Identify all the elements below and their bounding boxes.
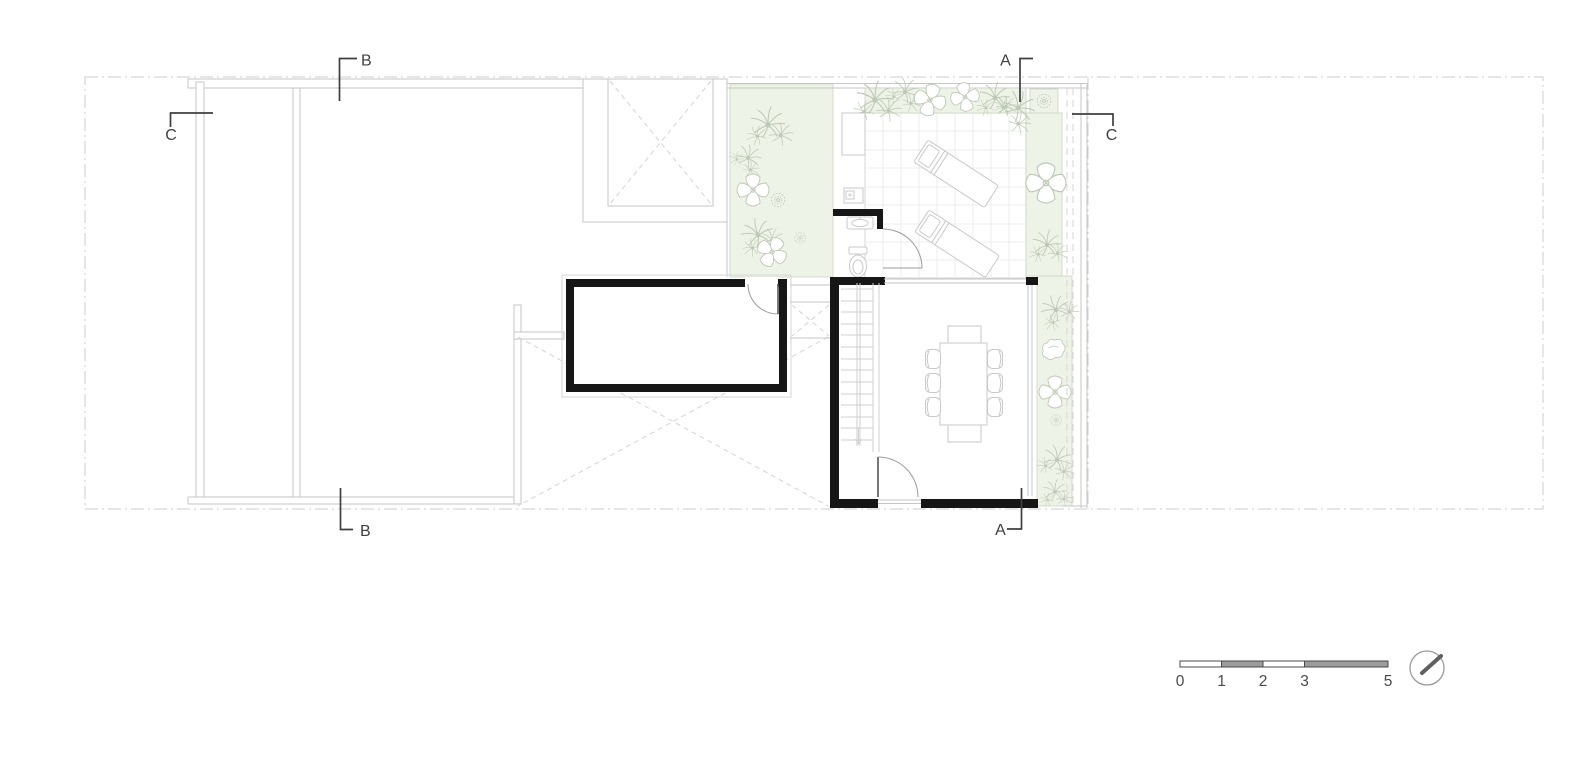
section-marker-c-right: C [1072, 114, 1118, 144]
stair-direction-arrow [855, 428, 862, 444]
dining-end-seat [948, 425, 981, 442]
section-marker-c-left: C [165, 113, 213, 144]
roof-plan-page: B C A C B A 0 1 2 3 5 [0, 0, 1582, 776]
equipment-unit [844, 188, 863, 203]
chair-icon [988, 350, 1003, 369]
section-label: B [360, 523, 372, 540]
dining-table [940, 343, 987, 425]
roof-room-walls [570, 283, 783, 388]
terrace-tiled-floor [865, 113, 1026, 278]
chair-icon [926, 350, 941, 369]
scale-tick-label: 0 [1176, 673, 1185, 690]
section-label: C [165, 127, 178, 144]
chair-icon [926, 398, 941, 417]
bottom-parapet-wall [188, 497, 518, 504]
dining-end-seat [948, 326, 981, 343]
scale-tick-label: 1 [1217, 673, 1226, 690]
dining-room [830, 277, 1038, 508]
section-label: A [995, 522, 1007, 539]
sink-icon [847, 217, 873, 229]
roof-room-door-opening [745, 277, 778, 288]
toilet-icon [849, 247, 867, 277]
dining-wall-bottom-left [830, 499, 878, 508]
scale-tick-label: 3 [1300, 673, 1309, 690]
section-marker-b-bottom: B [341, 488, 372, 540]
section-label: B [361, 53, 373, 70]
roof-edge-ledge [514, 332, 564, 339]
dining-set [926, 326, 1003, 442]
courtyard-void [583, 79, 727, 222]
garden-bed [722, 79, 833, 277]
section-label: C [1106, 127, 1119, 144]
top-parapet-wall [188, 79, 583, 88]
left-parapet-wall [196, 82, 204, 504]
scale-tick-label: 2 [1259, 673, 1268, 690]
section-marker-a-bottom: A [995, 488, 1021, 539]
dining-column [1026, 277, 1038, 285]
left-roof-area [188, 79, 583, 504]
bathroom-door-jamb [877, 216, 883, 229]
roof-divider-wall [293, 88, 300, 497]
void-outer-border [583, 79, 727, 222]
walkway-planter-box [842, 113, 865, 155]
roof-room [562, 275, 791, 397]
north-arrow-icon [1410, 651, 1444, 685]
dining-wall-left [830, 277, 839, 508]
scale-tick-label: 5 [1384, 673, 1393, 690]
section-label: A [1000, 53, 1012, 70]
chair-icon [988, 374, 1003, 393]
entry-door [878, 457, 921, 504]
floor-plan-canvas: B C A C B A 0 1 2 3 5 [0, 0, 1582, 776]
entry-door-arc [878, 457, 918, 497]
staircase [841, 283, 879, 452]
roof-bridge [790, 285, 830, 338]
dining-wall-bottom-right [921, 499, 1038, 508]
scale-bar: 0 1 2 3 5 [1176, 661, 1393, 690]
bathroom-wall [833, 209, 883, 216]
chair-icon [988, 398, 1003, 417]
chair-icon [926, 374, 941, 393]
